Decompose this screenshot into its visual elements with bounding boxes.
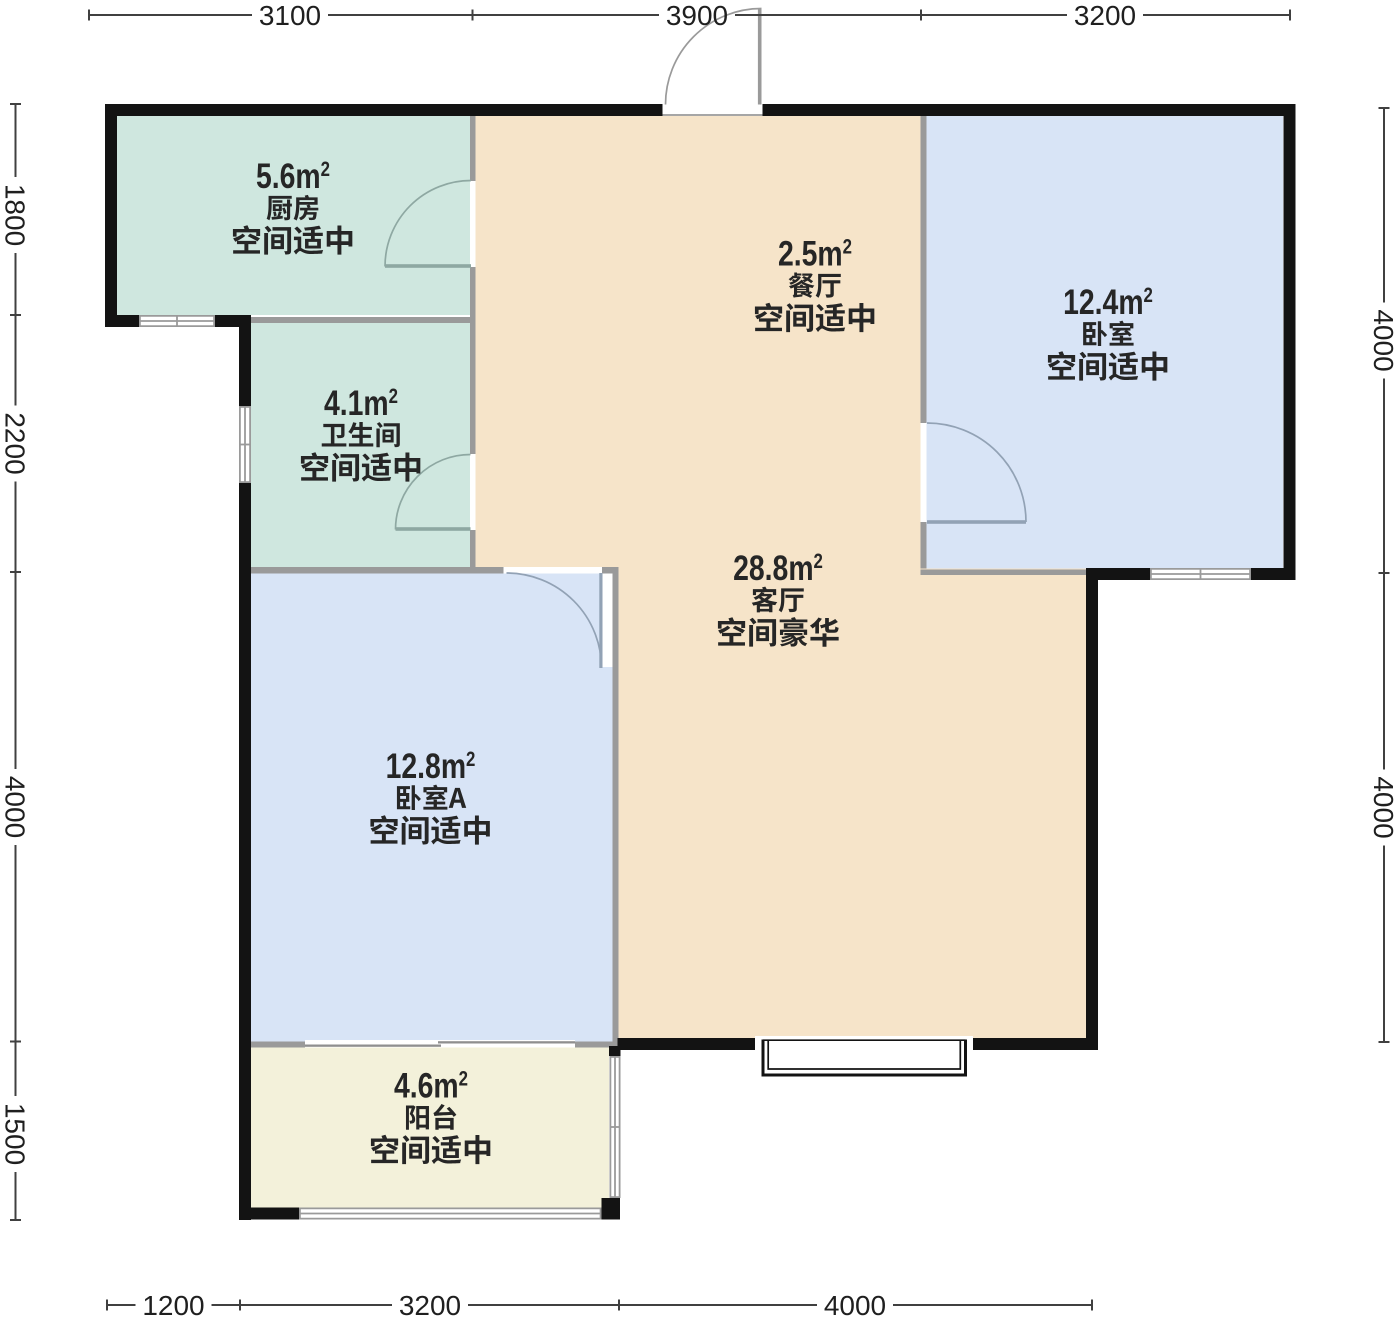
svg-text:5.6m2: 5.6m2 [256,156,330,196]
svg-text:2.5m2: 2.5m2 [778,233,852,273]
svg-text:4000: 4000 [824,1290,886,1321]
svg-text:1800: 1800 [0,184,31,246]
svg-text:4000: 4000 [1368,309,1399,371]
svg-text:1200: 1200 [142,1290,204,1321]
svg-text:4000: 4000 [0,776,31,838]
svg-text:3200: 3200 [1074,0,1136,31]
svg-text:3100: 3100 [259,0,321,31]
svg-text:1500: 1500 [0,1103,31,1165]
svg-text:28.8m2: 28.8m2 [733,548,823,588]
svg-text:3900: 3900 [666,0,728,31]
svg-text:4.6m2: 4.6m2 [394,1065,468,1105]
svg-text:3200: 3200 [399,1290,461,1321]
svg-text:12.4m2: 12.4m2 [1063,282,1153,322]
svg-text:4000: 4000 [1368,776,1399,838]
svg-text:4.1m2: 4.1m2 [324,383,398,423]
svg-text:12.8m2: 12.8m2 [386,746,476,786]
svg-text:2200: 2200 [0,412,31,474]
